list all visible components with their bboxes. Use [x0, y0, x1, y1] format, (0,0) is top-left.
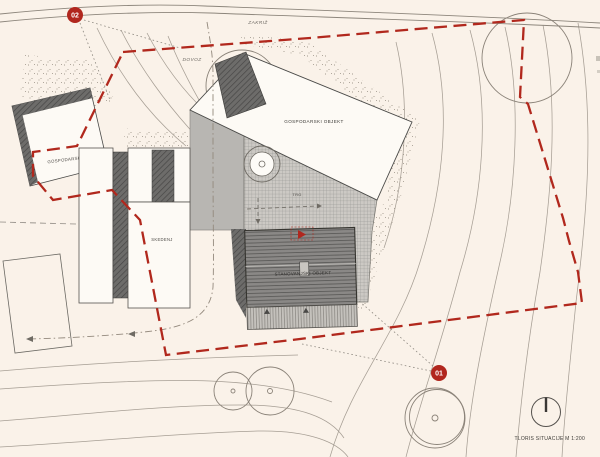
building-stanovanjski: STANOVANJSKI OBJEKT	[231, 227, 357, 329]
label-dovoz: DOVOZ	[182, 57, 202, 63]
viewpoint-marker-01: 01	[431, 365, 447, 381]
marker-01-label: 01	[435, 371, 443, 378]
label-skedenj: SKEDENJ	[151, 237, 172, 242]
viewpoint-marker-02: 02	[67, 7, 83, 23]
marker-02-label: 02	[71, 13, 79, 20]
label-gospodarski-main: GOSPODARSKI OBJEKT	[284, 119, 343, 124]
site-plan-drawing: GOSPODARSKI OBJEKT GOSPODARSKI OBJEKT SK…	[0, 0, 600, 457]
drawing-caption: TLORIS SITUACIJE M 1:200	[515, 436, 585, 442]
label-trg: TRG	[292, 192, 301, 197]
building-skedenj-cluster: SKEDENJ	[79, 148, 190, 308]
house-deck	[247, 304, 358, 329]
site-plan-page: GOSPODARSKI OBJEKT GOSPODARSKI OBJEKT SK…	[0, 0, 600, 457]
